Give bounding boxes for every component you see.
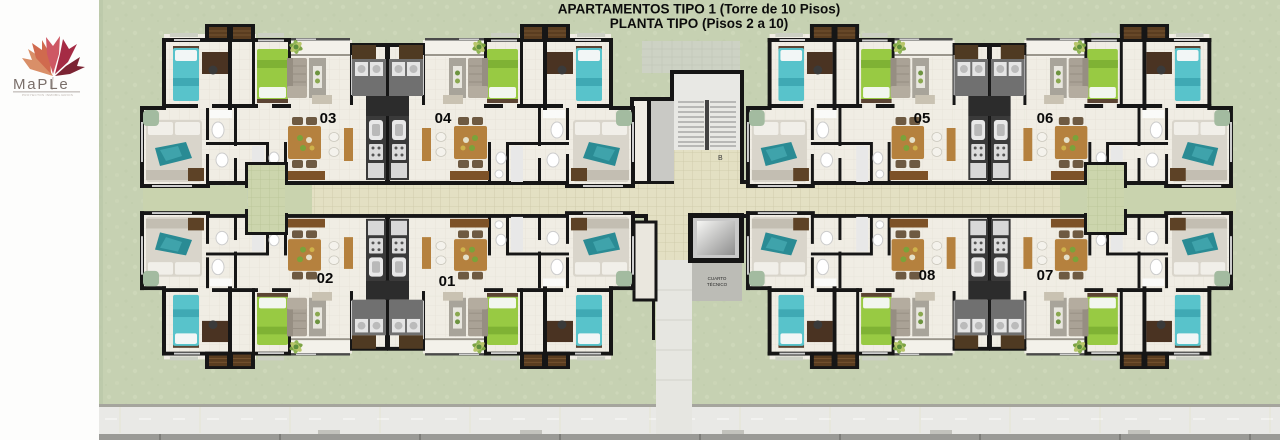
svg-text:07: 07 [1037, 267, 1054, 284]
svg-text:04: 04 [435, 110, 452, 127]
svg-text:08: 08 [919, 267, 936, 284]
svg-text:PROYECTOS INMOBILIARIOS: PROYECTOS INMOBILIARIOS [22, 93, 73, 97]
svg-text:TÉCNICO: TÉCNICO [707, 281, 728, 287]
svg-text:03: 03 [320, 110, 337, 127]
svg-text:02: 02 [317, 270, 334, 287]
svg-text:APARTAMENTOS TIPO 1 (Torre de: APARTAMENTOS TIPO 1 (Torre de 10 Pisos) [558, 2, 841, 17]
svg-text:B: B [718, 155, 723, 162]
svg-text:MaPLe: MaPLe [13, 76, 70, 93]
svg-text:PLANTA TIPO (Pisos 2 a 10): PLANTA TIPO (Pisos 2 a 10) [610, 16, 789, 31]
svg-text:05: 05 [914, 110, 931, 127]
svg-text:06: 06 [1037, 110, 1054, 127]
svg-text:01: 01 [439, 273, 456, 290]
svg-text:CUARTO: CUARTO [708, 276, 727, 281]
